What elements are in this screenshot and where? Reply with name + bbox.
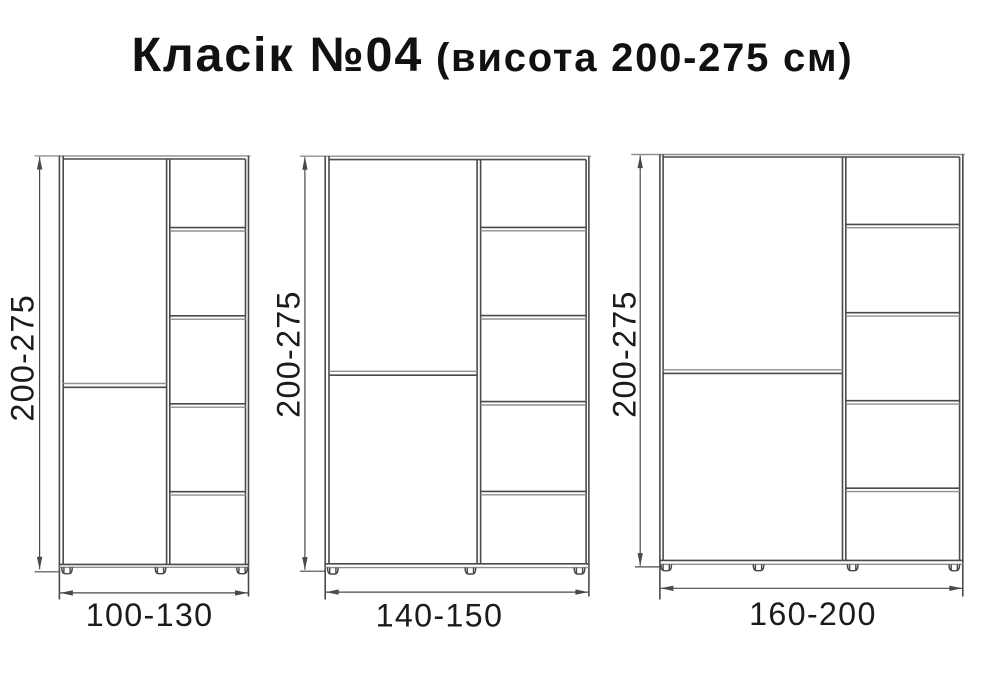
svg-text:100-130: 100-130: [86, 597, 214, 633]
svg-text:200-275: 200-275: [5, 294, 41, 422]
svg-text:Класік №04 (висота 200-275 см): Класік №04 (висота 200-275 см): [132, 28, 854, 82]
svg-text:200-275: 200-275: [271, 290, 307, 418]
svg-text:200-275: 200-275: [607, 290, 643, 418]
svg-text:160-200: 160-200: [749, 596, 877, 632]
svg-text:140-150: 140-150: [376, 597, 504, 633]
